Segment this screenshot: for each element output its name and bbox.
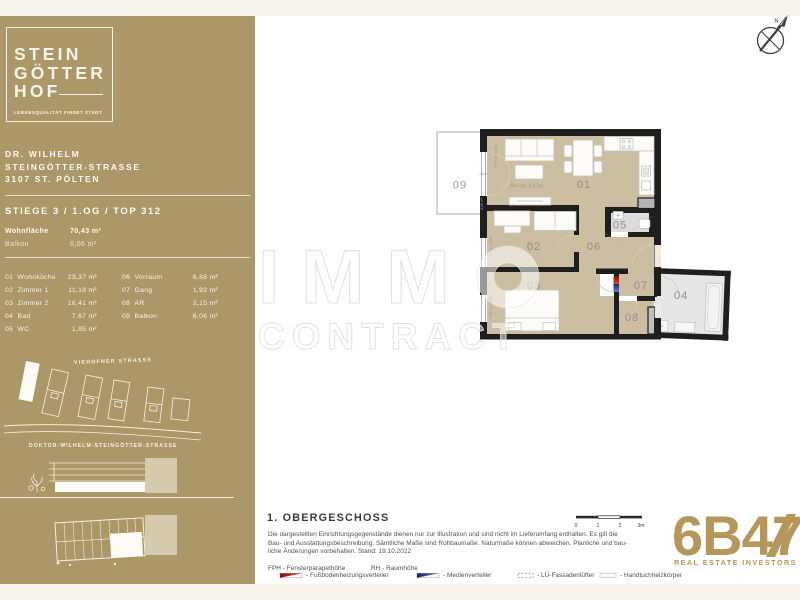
svg-text:FPH ca. 0,15m: FPH ca. 0,15m [494,144,498,168]
svg-text:3m: 3m [637,523,644,529]
svg-text:01: 01 [577,179,591,191]
svg-text:1: 1 [597,523,600,529]
svg-text:06: 06 [587,241,601,253]
svg-text:RH ca. 2,53m: RH ca. 2,53m [510,184,544,190]
svg-text:09: 09 [453,180,467,192]
svg-text:0: 0 [575,523,578,529]
svg-text:07: 07 [634,280,648,292]
svg-text:IMM: IMM [258,235,472,320]
svg-text:05: 05 [613,220,627,232]
svg-text:04: 04 [674,290,689,303]
svg-text:08: 08 [625,312,639,324]
svg-text:N: N [775,19,779,25]
svg-text:6,06 m²: 6,06 m² [480,197,484,210]
svg-text:CONTRACT: CONTRACT [258,316,522,357]
svg-text:02: 02 [527,241,541,253]
svg-text:2: 2 [619,523,622,529]
